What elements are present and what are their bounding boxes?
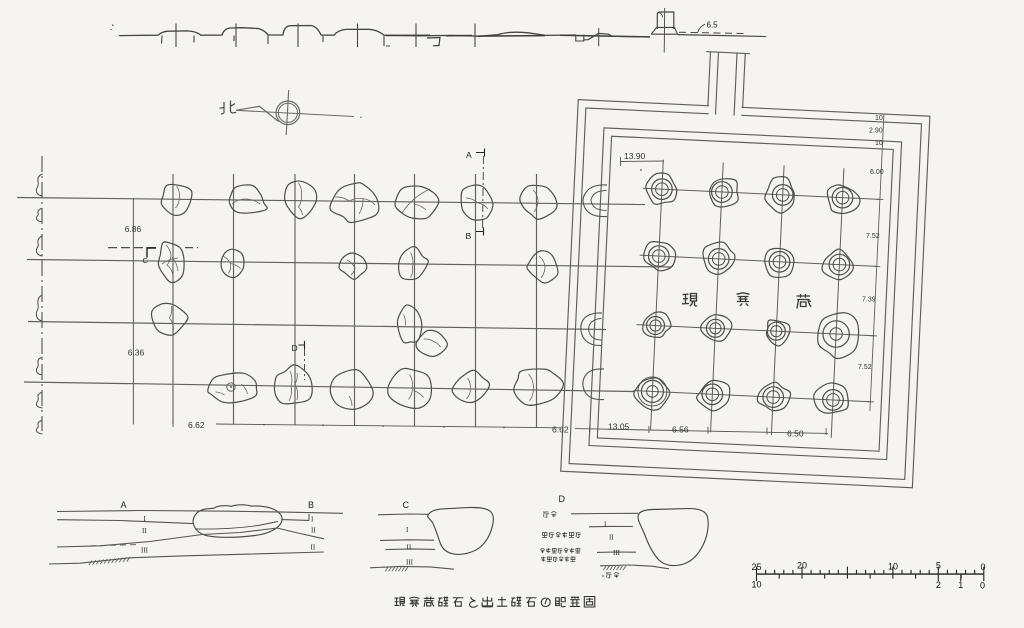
svg-text:B: B	[466, 231, 472, 241]
svg-text:1: 1	[958, 580, 963, 590]
svg-text:25: 25	[751, 562, 761, 572]
svg-text:C: C	[403, 500, 410, 510]
svg-text:B: B	[308, 500, 314, 510]
svg-text:10: 10	[751, 580, 761, 590]
svg-text:10: 10	[875, 115, 883, 122]
svg-text:II: II	[407, 544, 412, 552]
svg-text:5: 5	[936, 561, 941, 571]
svg-text:7.52: 7.52	[866, 233, 880, 240]
svg-text:10: 10	[888, 562, 898, 572]
svg-text:10: 10	[875, 140, 883, 147]
svg-text:6.62: 6.62	[188, 420, 205, 430]
svg-text:A: A	[121, 500, 127, 510]
svg-text:7.39: 7.39	[862, 297, 876, 304]
svg-text:II: II	[609, 534, 614, 542]
svg-text:13.05: 13.05	[608, 422, 630, 432]
svg-text:D: D	[292, 343, 298, 353]
svg-text:6.50: 6.50	[787, 429, 804, 439]
svg-text:II: II	[142, 527, 147, 535]
svg-text:20: 20	[797, 561, 807, 571]
svg-text:2.90: 2.90	[869, 128, 883, 135]
svg-text:III: III	[406, 559, 414, 567]
svg-text:7.52: 7.52	[858, 364, 872, 371]
svg-text:2: 2	[936, 580, 941, 590]
svg-text:A: A	[466, 150, 472, 160]
svg-text:0: 0	[980, 581, 985, 591]
svg-text:6.00: 6.00	[870, 169, 884, 176]
svg-text:0: 0	[980, 562, 985, 572]
svg-text:II: II	[311, 527, 316, 535]
svg-text:6.62: 6.62	[552, 425, 569, 435]
svg-text:III: III	[613, 549, 621, 557]
svg-text:6.56: 6.56	[672, 425, 689, 435]
svg-text:II: II	[311, 544, 316, 552]
svg-text:6.36: 6.36	[128, 348, 145, 358]
svg-text:III: III	[141, 547, 149, 555]
svg-text:6.5: 6.5	[707, 21, 719, 30]
svg-text:D: D	[559, 494, 566, 504]
svg-text:6.86: 6.86	[125, 224, 142, 234]
svg-text:13.90: 13.90	[624, 151, 646, 161]
svg-text:C: C	[143, 256, 149, 265]
